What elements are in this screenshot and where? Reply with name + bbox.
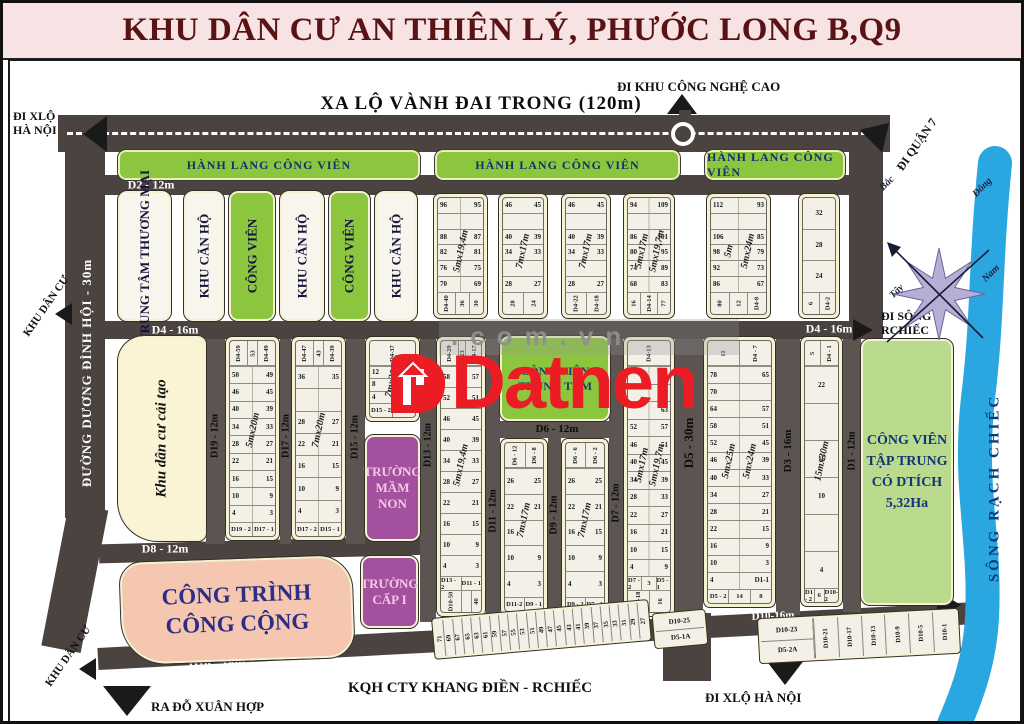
plot-row: 3427 [708,486,771,503]
road-label-d11: D11 - 12m [488,489,499,532]
plot-cell: D4-59 [230,341,247,365]
plot-row: 1615 [230,470,275,487]
plot-block-K: D4-1375696352574651404534392833222716211… [623,336,675,617]
plot-row: 109 [230,487,275,504]
facility-label: CÔNG VIÊN [342,219,358,294]
plot-cell: D15 - 1 [318,523,341,536]
plot-row: 2827 [441,471,481,492]
plot-row: 5251 [441,387,481,408]
facility-label: TRƯỜNG MẦM NON [361,462,423,514]
plot-row: 109 [441,534,481,555]
plot-block-C: 4645403934332827D4-22D4-187mx17m [561,193,611,319]
plot-cell: 80 [711,293,729,314]
plot-cell: D17 - 2 [296,523,318,536]
plot-cell: 12 [729,293,748,314]
road-d7 [609,339,623,624]
road-d11 [486,339,500,623]
plot-cell: 3 [641,577,655,590]
plot-cell: D5 - 2 [708,590,728,603]
plot-row: 7675 [438,260,483,276]
facility-label: KHU CĂN HỘ [294,214,310,299]
header: KHU DÂN CƯ AN THIÊN LÝ, PHƯỚC LONG B,Q9 [3,3,1021,60]
plot-row: 2827 [296,411,341,433]
plot-row [503,260,543,276]
plot-row: 70 [708,383,771,400]
plot-row: 10685 [711,229,766,245]
plot-row [628,213,670,229]
plot-cell: D6 - 12 [505,443,525,467]
plot-row [438,213,483,229]
plot-row: 2827 [503,276,543,292]
road-d3 [776,339,800,615]
plot-cell: 24 [523,293,544,314]
plot-row: 6883 [628,276,670,292]
plot-cell: D13 - 2 [441,577,461,590]
plot-row: 169 [708,538,771,555]
facility-label: TRƯỜNG CẤP I [358,574,420,610]
facility-label: CÔNG TRÌNH CÔNG CỘNG [122,575,352,644]
plot-row: 8 [370,378,415,390]
exit-bottom-left: RA ĐỖ XUÂN HỢP [151,700,264,715]
plot-cell: D4-17 [465,341,482,365]
plot-row [566,260,606,276]
plot-row: 43 [441,555,481,576]
plot-cell: D4-18 [586,293,607,314]
plot-row: 1015 [628,541,670,559]
plot-row: 43 [296,500,341,522]
plot-row: 8887 [438,229,483,245]
road-label-main: XA LỘ VÀNH ĐAI TRONG (120m) [320,93,641,115]
plot-row: 4645 [503,198,543,213]
subdivision-map: KHU DÂN CƯ AN THIÊN LÝ, PHƯỚC LONG B,Q9 … [0,0,1024,724]
plot-block-A: 96958887828176757069D4-4036305mx19,4m [433,193,488,319]
plot-row: 9273 [711,260,766,276]
plot-row: 1615 [296,455,341,477]
plot-row: 5245 [708,435,771,452]
plot-cell: 23 [458,341,466,365]
facility-parkcenter: CÔNG VIÊN TRUNG TÂM [500,336,610,421]
road-main-dashes [67,132,867,135]
plot-row: 4D1-1 [708,572,771,589]
plot-row [296,388,341,410]
plot-cell: D6 - 8 [525,443,543,467]
plot-row: 86101 [628,229,670,245]
plot-row: 8281 [438,244,483,260]
plot-row: 103 [708,555,771,572]
plot-row: 8095 [628,244,670,260]
plot-cell: D4-13 [628,341,670,365]
plot-row: 43 [370,391,415,403]
plot-row: 7865 [708,366,771,383]
plot-row: 94109 [628,198,670,213]
facility-label: KHU CĂN HỘ [196,214,212,299]
road-label-d15: D15 - 12m [350,415,361,459]
plot-row: 16 [505,520,543,546]
plot-row: 69 [628,384,670,402]
plot-cell: D5 - 1 [656,577,670,590]
plot-cell: 6 [803,293,819,314]
plot-row: 3433 [566,244,606,260]
plot-row: 2215 [708,520,771,537]
exit-top-left: ĐI XLỘ HÀ NỘI [13,110,71,138]
plot-cell: D15 - 2 [370,404,392,417]
facility-cv1: CÔNG VIÊN [229,191,275,321]
plot-block-N: 11D4 - 778657064575851524546394033342728… [703,336,776,608]
plot-row: 7069 [438,276,483,292]
plot-row: 4039 [441,429,481,450]
facility-mamnon: TRƯỜNG MẦM NON [365,435,420,541]
plot-row: 2221 [296,433,341,455]
plot-cell: 6 [814,589,824,602]
plot-cell: D5-2A [761,638,814,661]
plot-cell: D6 - 6 [566,443,585,467]
plot-row [503,213,543,229]
plot-row: 6457 [708,400,771,417]
plot-block-B: 464540393433282728247mx17m [498,193,548,319]
plot-row: 43 [505,571,543,597]
road-label-duong-dinh-hoi: ĐƯỜNG DƯƠNG ĐÌNH HỘI - 30m [79,259,95,487]
plot-row: 8667 [711,276,766,292]
arrow-north-stem [679,110,691,120]
plot-cell: 8 [750,590,771,603]
road-label-d5: D5 - 30m [681,418,697,469]
plot-row: 5857 [441,366,481,387]
plot-cell: D4-37 [370,341,415,365]
facility-caitao: Khu dân cư cải tạo [118,336,206,541]
plot-row: 3433 [441,450,481,471]
facility-ttm: TRUNG TÂM THƯƠNG MẠI [118,191,171,321]
plot-block-M: D6 - 6D6 - 226252221161510943D9 - 2D7 - … [561,438,609,616]
road-label-d19: D19 - 12m [210,414,221,458]
road-label-d9: D9 - 12m [549,496,560,535]
plot-row: 1615 [441,513,481,534]
facility-kch2: KHU CĂN HỘ [280,191,324,321]
facility-congtrinh: CÔNG TRÌNH CÔNG CỘNG [119,555,354,665]
plot-row [711,213,766,229]
green-corridor-2: HÀNH LANG CÔNG VIÊN [435,150,680,180]
compass-rose [861,226,1011,361]
plot-block-G: D4-5953D4-495049464540393433282722211615… [225,336,280,541]
plot-row: 2827 [230,435,275,452]
plot-row: 5257 [628,419,670,437]
plot-cell: D11-2 [505,598,524,611]
plot-cell: D5-1A [656,626,705,646]
plot-row: 2625 [566,468,604,494]
arrow-khudancu-upper-icon [55,303,72,325]
plot-row: 43 [566,571,604,597]
plot-row: 2827 [566,276,606,292]
plot-cell: D13 - 1 [392,404,415,417]
plot-row: 5049 [230,366,275,383]
plot-row: 4639 [708,452,771,469]
facility-kch1: KHU CĂN HỘ [184,191,224,321]
facility-capmot: TRƯỜNG CẤP I [361,556,418,628]
road-label-d13: D13 - 12m [423,423,434,467]
plot-row: 4651 [628,436,670,454]
plot-cell: 28 [503,293,523,314]
plot-cell [461,591,471,612]
plot-row: 109 [505,545,543,571]
plot-cell: D4-14 [640,293,658,314]
plot-cell: 16 [628,293,640,314]
green-corridor-1: HÀNH LANG CÔNG VIÊN [118,150,420,180]
road-label-d8: D8 - 12m [142,542,189,557]
plot-row: 3439 [628,471,670,489]
facility-label: KHU CĂN HỘ [388,214,404,299]
plot-cell: D4-22 [566,293,586,314]
roundabout [671,122,695,146]
page-title: KHU DÂN CƯ AN THIÊN LÝ, PHƯỚC LONG B,Q9 [122,12,901,49]
plot-row: 2221 [505,494,543,520]
plot-row: 2221 [566,494,604,520]
plot-row: 1615 [566,520,604,546]
plot-row: 2227 [628,506,670,524]
facility-label: CÔNG VIÊN [244,219,260,294]
plot-cell: 43 [313,341,324,365]
plot-block-L: D6 - 12D6 - 8262522211610943D11-2D9 - 17… [500,438,548,616]
plot-cell: D11 - 1 [461,577,482,590]
plot-row: 9695 [438,198,483,213]
plot-row: 4039 [503,229,543,245]
facility-label: CÔNG VIÊN TRUNG TÂM [502,362,608,396]
plot-row: 4039 [566,229,606,245]
plot-cell: 30 [469,293,483,314]
facility-label: Khu dân cư cải tạo [154,379,171,497]
plot-cell: D19 - 2 [230,523,252,536]
road-label-d3: D3 - 16m [782,430,794,473]
plot-row: 4645 [230,383,275,400]
plot-cell: 27 [636,602,648,639]
plot-cell: D4 - 7 [739,341,771,365]
plot-row [566,213,606,229]
plot-row: 1621 [628,524,670,542]
plot-cell: 36 [455,293,469,314]
map-canvas: SÔNG RẠCH CHIẾC XA [3,58,1024,724]
plot-row: 49 [628,559,670,577]
plot-cell: 77 [657,293,670,314]
plot-row: 7489 [628,260,670,276]
plot-cell: D4-47 [296,341,313,365]
road-label-d17: D17 - 12m [281,414,292,458]
plot-cell: D17 - 1 [252,523,275,536]
plot-cell: D4-49 [257,341,275,365]
plot-row: 109 [296,477,341,499]
plot-row: 2833 [628,489,670,507]
plot-cell: D4-40 [438,293,455,314]
plot-row: 9879 [711,244,766,260]
plot-row: 3635 [296,366,341,388]
facility-cv2: CÔNG VIÊN [329,191,370,321]
plot-row: 2821 [708,503,771,520]
plot-row: 3433 [503,244,543,260]
plot-row: 4033 [708,469,771,486]
plot-row: 4645 [441,408,481,429]
plot-block-d10-25: D10-25D5-1A [652,609,709,650]
plot-row: 4645 [566,198,606,213]
exit-bottom-right: ĐI XLỘ HÀ NỘI [705,691,801,706]
plot-cell: D7 - 2 [628,577,641,590]
plot-cell: 14 [728,590,749,603]
plot-cell: D4-8 [747,293,766,314]
plot-cell: 5 [805,341,820,365]
road-d5 [675,339,703,622]
facility-kch3: KHU CĂN HỘ [375,191,417,321]
plot-cell: D4-39 [323,341,341,365]
label-bottom-center: KQH CTY KHANG ĐIỀN - RCHIẾC [348,680,592,697]
plot-row: 43 [230,505,275,522]
plot-row: 4045 [628,454,670,472]
facility-label: TRUNG TÂM THƯƠNG MẠI [137,170,153,342]
plot-row: 5851 [708,417,771,434]
plot-row: 11293 [711,198,766,213]
road-left-lower [41,503,108,653]
plot-block-E: 11293106859879927386678012D4-85m5mx24m [706,193,771,319]
plot-block-J: D4-2923D4-175857525146454039343328272221… [436,336,486,617]
plot-row: 63 [628,401,670,419]
plot-row: 2221 [441,492,481,513]
arrow-khudancu-lower-icon [79,658,96,680]
plot-cell: 53 [247,341,258,365]
exit-top: ĐI KHU CÔNG NGHỆ CAO [617,80,780,95]
green-corridor-3: HÀNH LANG CÔNG VIÊN [705,150,845,180]
plot-cell: 11 [708,341,739,365]
plot-cell: D1 - 2 [805,589,814,602]
plot-row: 2625 [505,468,543,494]
plot-block-D: 941098610180957489688316D4-14775mx17m5mx… [623,193,675,319]
plot-row: 109 [566,545,604,571]
plot-cell: D10-50 [441,591,461,612]
plot-block-H: D4-4743D4-39363528272221161510943D17 - 2… [291,336,346,541]
river-label: SÔNG RẠCH CHIẾC [987,394,1004,582]
arrow-west-hanoi-icon [83,116,107,152]
arrow-xuanhop-icon [103,686,151,716]
road-label-d6: D6 - 12m [536,423,579,435]
plot-row: 3433 [230,418,275,435]
plot-block-I: D4-3712843D15 - 2D13 - 17mx20,4m [365,336,420,422]
plot-cell: 40 [471,591,481,612]
plot-cell: D4-29 [441,341,458,365]
plot-cell: D6 - 2 [585,443,605,467]
plot-cell: 16 [649,591,671,612]
road-label-d7: D7 - 12m [611,484,622,523]
plot-row: 4039 [230,401,275,418]
plot-row: 2221 [230,453,275,470]
